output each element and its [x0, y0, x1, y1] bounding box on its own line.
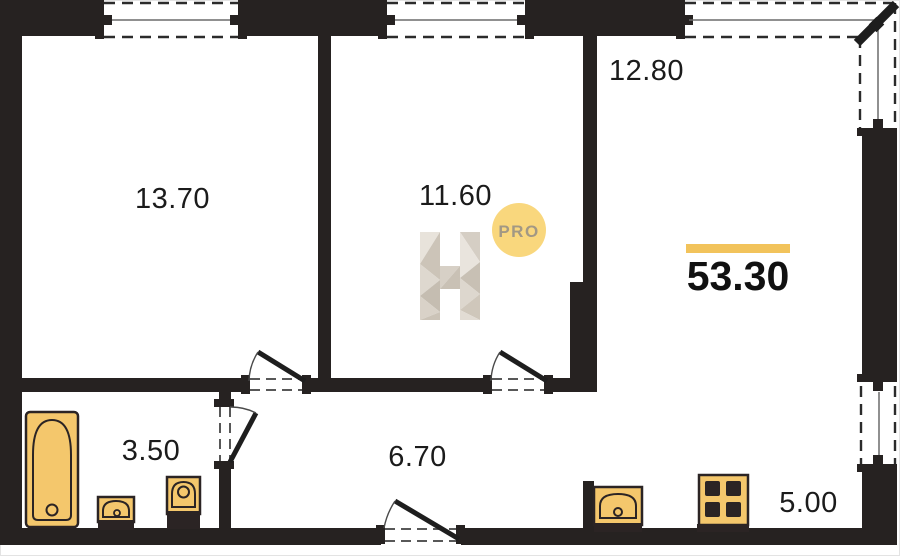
kitchen-sink	[594, 487, 642, 532]
door-room	[483, 352, 553, 394]
window-room	[378, 0, 534, 39]
window-kitchen	[857, 374, 897, 472]
bathtub	[26, 412, 78, 527]
wall-room2-right-lower	[570, 282, 597, 392]
wall-sink-stub	[583, 481, 594, 532]
wall-right-upper	[862, 133, 897, 378]
stove	[697, 475, 749, 532]
wall-bottom-left	[0, 528, 381, 545]
area-label-bathroom: 3.50	[96, 435, 206, 468]
wall-top-b	[243, 0, 380, 36]
window-corner-living	[676, 0, 897, 136]
wall-top-c	[526, 0, 685, 36]
total-area-accent-bar	[686, 244, 790, 253]
wall-bottom-right	[461, 528, 897, 545]
logo-h	[420, 232, 480, 320]
area-label-bedroom: 13.70	[110, 183, 235, 216]
wall-bathroom-upper	[219, 392, 231, 407]
window-bedroom	[95, 0, 247, 39]
wall-bathroom-lower	[219, 466, 231, 528]
washbasin	[98, 497, 134, 530]
wall-left	[0, 0, 22, 545]
door-bathroom	[214, 399, 256, 469]
total-area-value: 53.30	[672, 256, 804, 297]
total-area-block: 53.30	[672, 244, 804, 297]
wall-top-a	[0, 0, 100, 36]
area-label-living-area: 12.80	[584, 55, 709, 88]
floor-plan: PRO 13.70 11.60 12.80 3.50 6.70 5.00 53.…	[0, 0, 900, 556]
wall-hall-top-b	[307, 378, 488, 392]
area-label-hallway: 6.70	[360, 441, 475, 474]
wall-hall-top-a	[0, 378, 245, 392]
logo-pro-text: PRO	[498, 222, 539, 241]
area-label-room: 11.60	[393, 180, 518, 213]
door-entrance	[376, 501, 465, 544]
wall-hall-top-c	[549, 378, 597, 392]
wall-between-rooms	[318, 30, 331, 392]
door-bedroom	[241, 352, 311, 394]
area-label-kitchen: 5.00	[751, 487, 866, 520]
toilet	[167, 477, 200, 529]
